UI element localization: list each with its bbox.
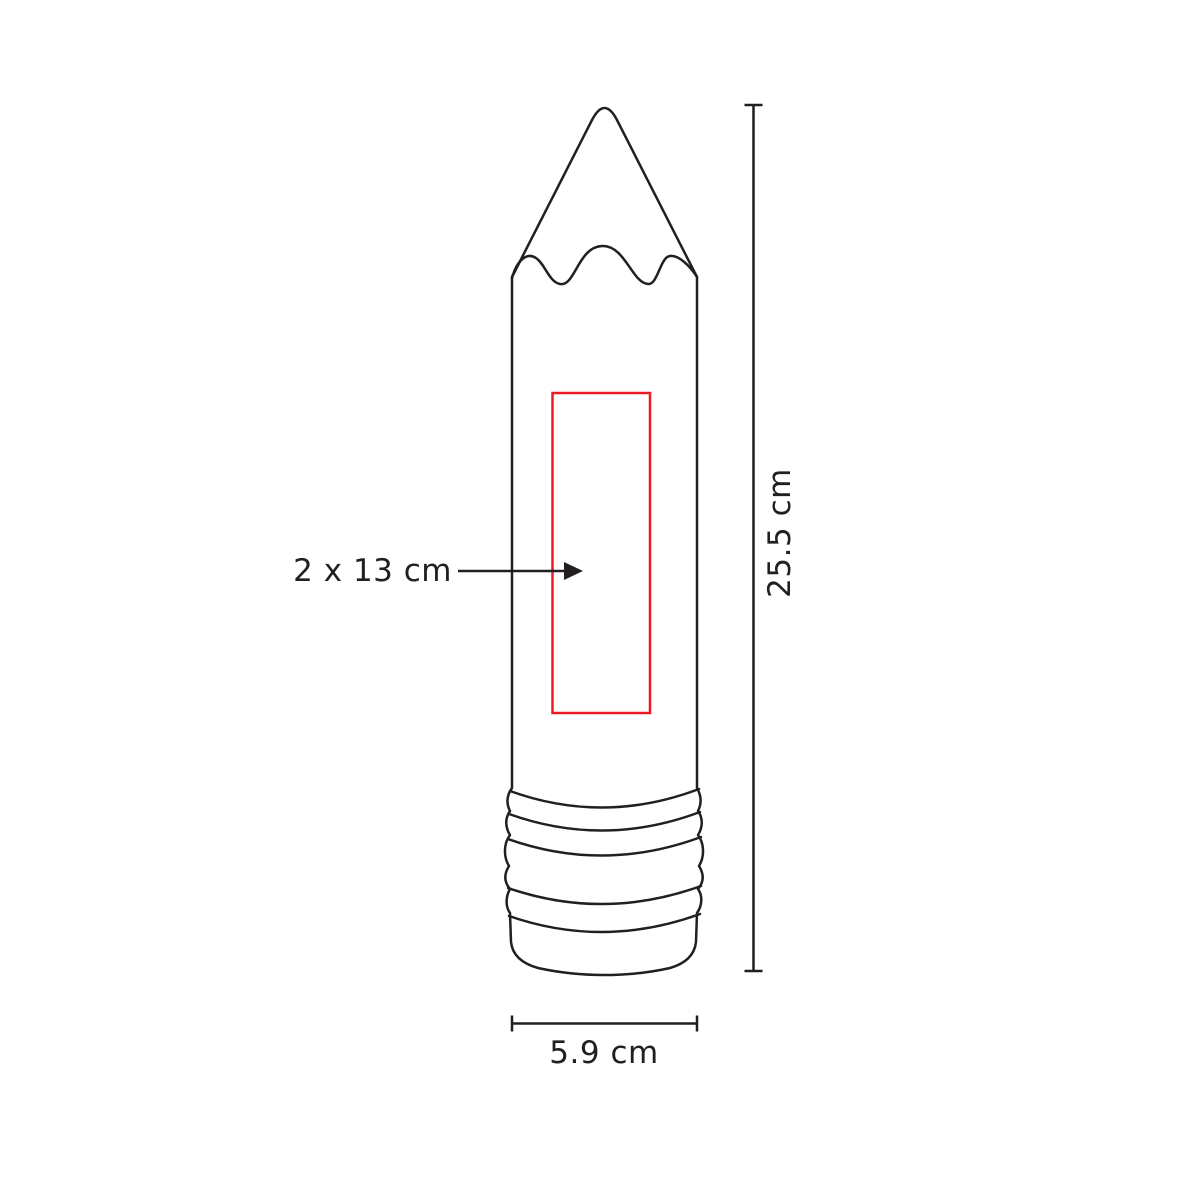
print-area-label: 2 x 13 cm [252, 551, 452, 591]
height-label: 25.5 cm [760, 433, 800, 633]
diagram-canvas: 2 x 13 cm 25.5 cm 5.9 cm [0, 0, 1196, 1200]
width-label: 5.9 cm [504, 1033, 704, 1073]
print-area-arrowhead-icon [564, 562, 583, 580]
ferrule-ring-5 [509, 914, 700, 932]
ferrule-ring-3 [508, 837, 701, 856]
pencil-collar-wave [512, 246, 697, 284]
pencil-line-art [505, 108, 703, 975]
ferrule-ring-2 [509, 812, 700, 831]
ferrule-ring-4 [508, 886, 701, 904]
width-dimension-line [512, 1016, 697, 1032]
ferrule-ring-1 [510, 789, 699, 808]
print-area-rect [553, 393, 651, 713]
pencil-diagram-svg [0, 0, 1196, 1200]
